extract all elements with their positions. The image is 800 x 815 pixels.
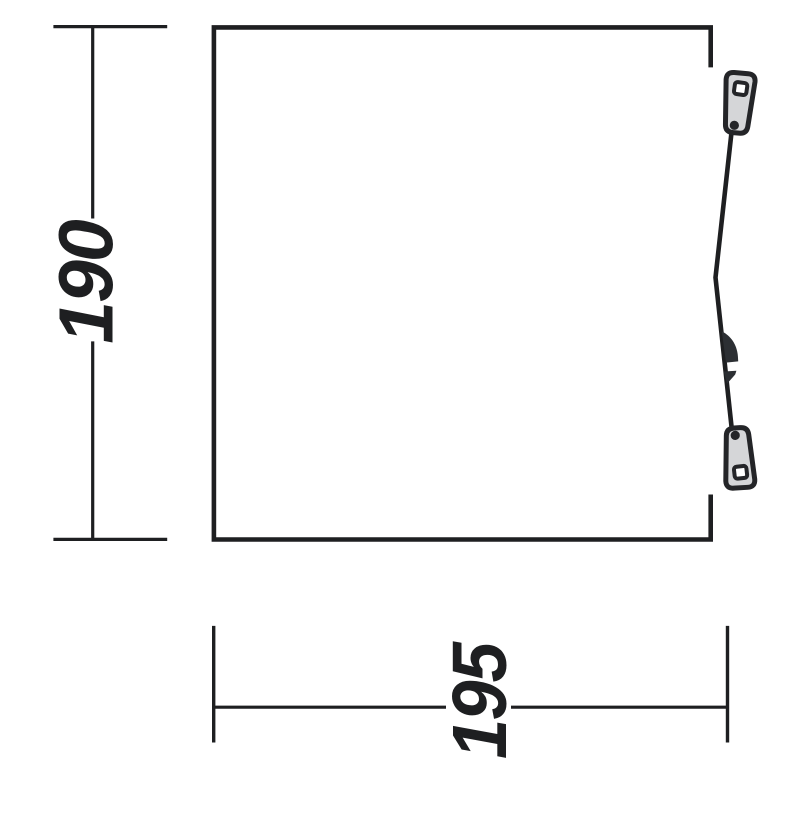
- svg-text:195: 195: [436, 641, 523, 759]
- svg-text:190: 190: [44, 219, 130, 344]
